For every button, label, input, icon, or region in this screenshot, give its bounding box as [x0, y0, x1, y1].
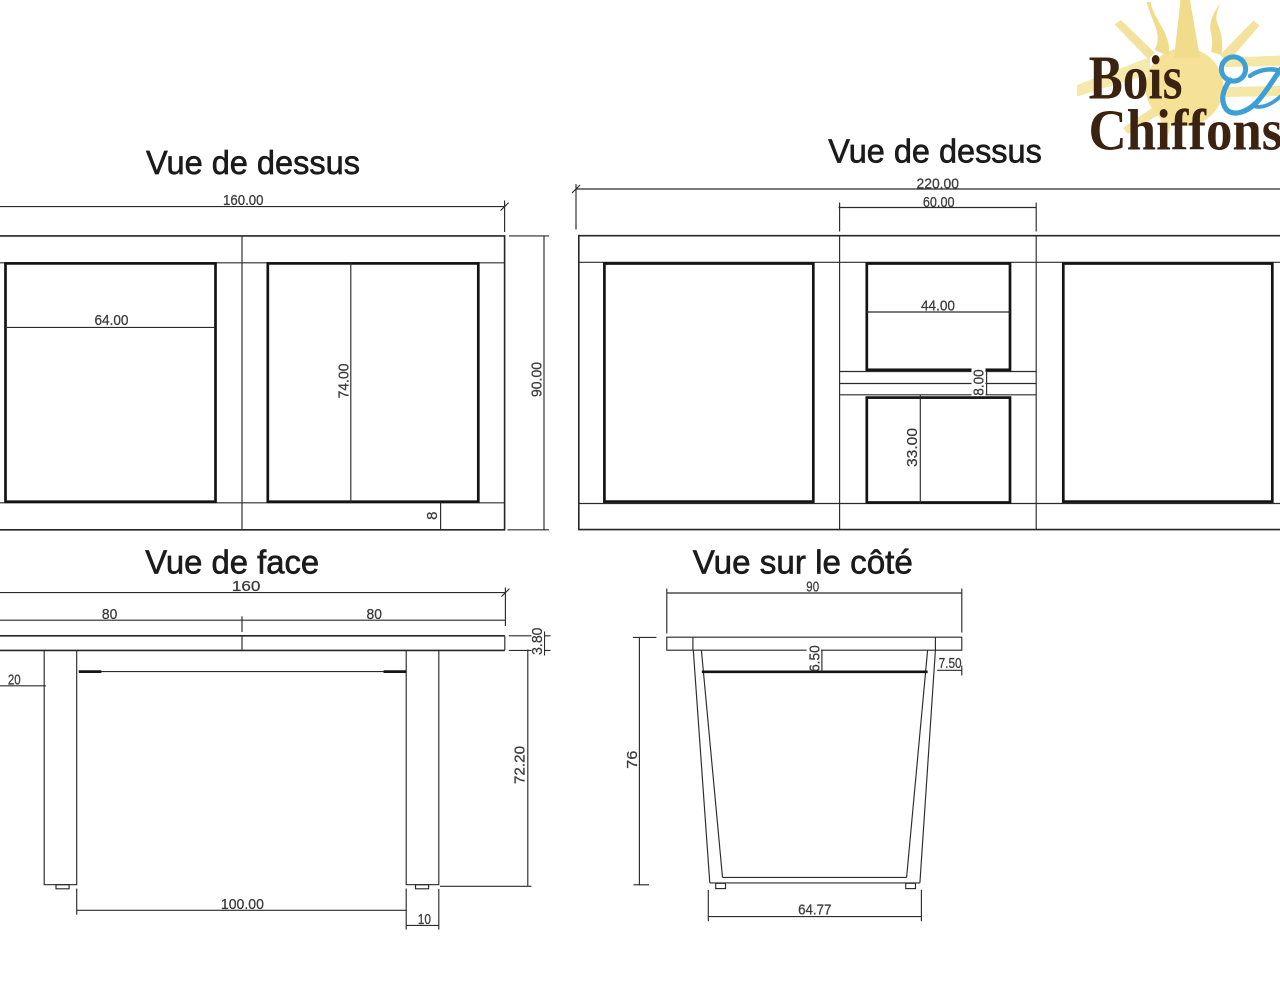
svg-text:44.00: 44.00 [921, 297, 955, 314]
svg-text:72.20: 72.20 [512, 746, 529, 784]
svg-text:Vue de face: Vue de face [145, 545, 319, 582]
svg-text:Vue de dessus: Vue de dessus [828, 134, 1042, 171]
svg-text:76: 76 [624, 751, 641, 769]
svg-text:20: 20 [8, 671, 21, 688]
svg-text:80: 80 [367, 606, 382, 623]
svg-text:160.00: 160.00 [223, 192, 264, 209]
svg-text:10: 10 [418, 911, 431, 928]
svg-text:3.80: 3.80 [529, 627, 546, 655]
svg-text:74.00: 74.00 [336, 364, 353, 399]
svg-text:90.00: 90.00 [529, 362, 546, 397]
svg-text:60.00: 60.00 [923, 194, 955, 211]
svg-text:220.00: 220.00 [917, 175, 960, 192]
svg-text:80: 80 [102, 606, 117, 623]
svg-text:7.50: 7.50 [939, 655, 962, 672]
svg-text:8: 8 [424, 512, 441, 520]
svg-text:64.00: 64.00 [95, 312, 129, 329]
svg-text:33.00: 33.00 [904, 428, 921, 467]
svg-text:160: 160 [232, 578, 261, 595]
svg-text:Vue sur le côté: Vue sur le côté [693, 545, 913, 582]
svg-text:64.77: 64.77 [798, 902, 831, 919]
svg-text:100.00: 100.00 [221, 896, 264, 913]
svg-text:6.50: 6.50 [807, 645, 824, 672]
svg-text:Vue de dessus: Vue de dessus [146, 145, 360, 182]
svg-text:8.00: 8.00 [971, 369, 988, 395]
svg-text:90: 90 [806, 579, 819, 596]
svg-text:Chiffons: Chiffons [1089, 99, 1280, 163]
